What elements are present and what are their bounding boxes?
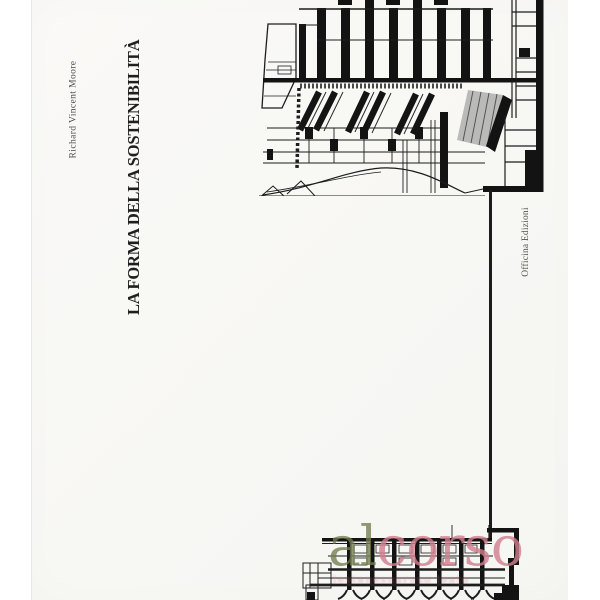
title-vertical-text: LA FORMA DELLA SOSTENIBILITÀ — [126, 55, 148, 315]
publisher-vertical-text: Officina Edizioni — [522, 197, 534, 287]
scan-margin-left — [0, 0, 31, 600]
scan-margin-right — [567, 0, 600, 600]
book-cover-photo: { "cover": { "author": "Richard Vincent … — [0, 0, 600, 600]
connector-rule — [489, 190, 492, 539]
top-architectural-drawing — [253, 0, 545, 196]
bottom-architectural-drawing — [298, 525, 544, 600]
author-vertical-text: Richard Vincent Moore — [70, 50, 83, 170]
